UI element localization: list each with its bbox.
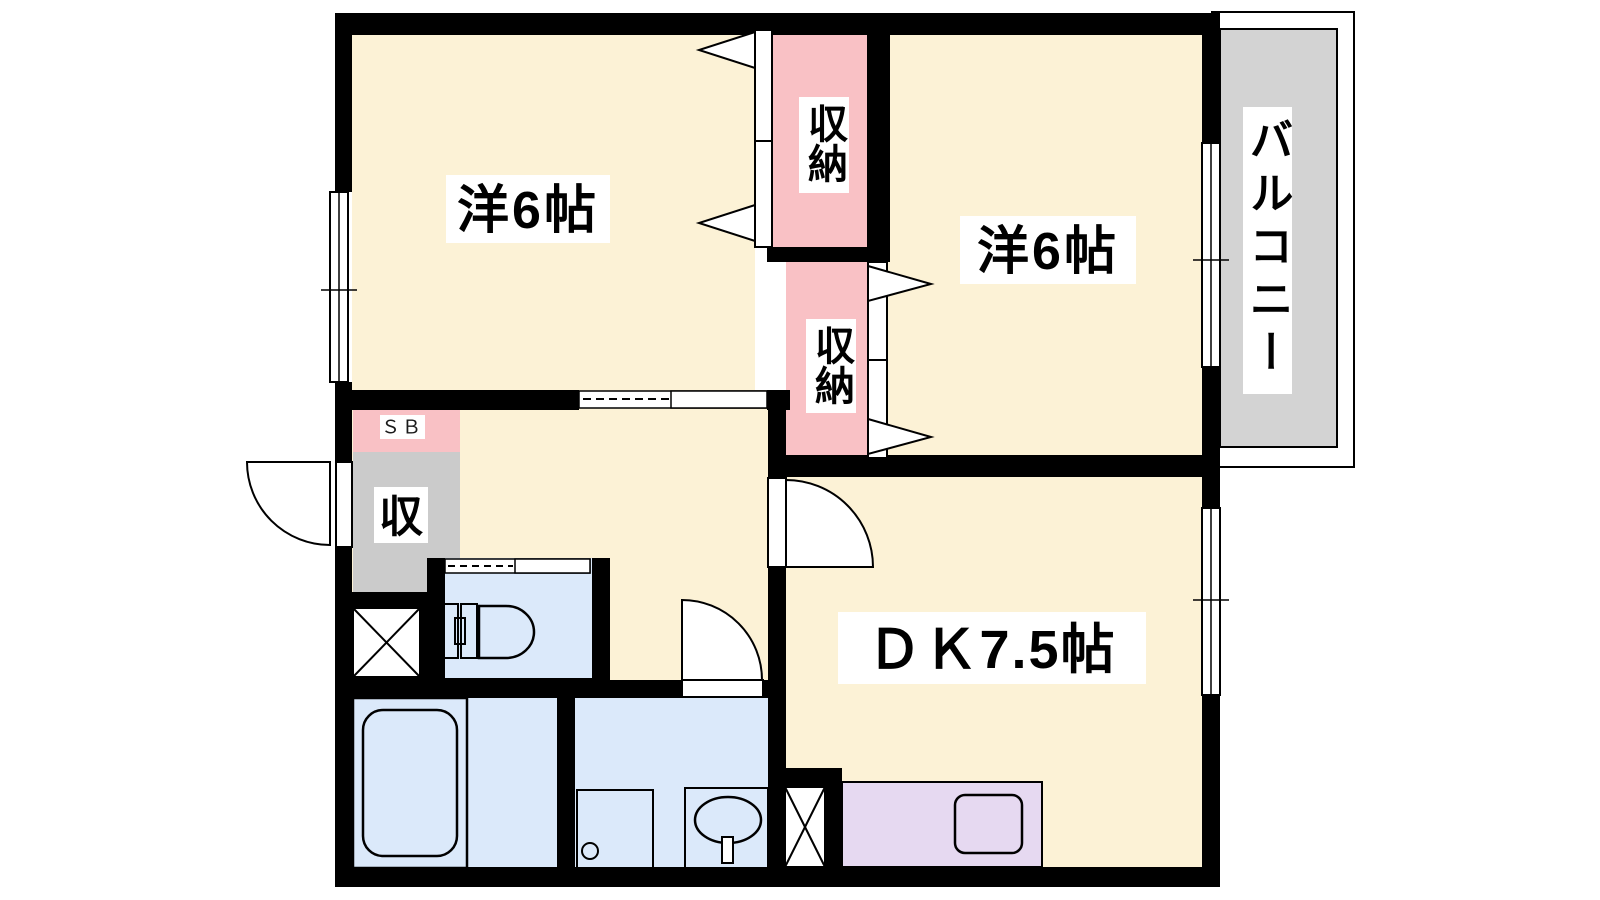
washroom-door-leaf (682, 680, 763, 697)
floor-plan-drawing: 洋6帖 洋6帖 ＤＫ7.5帖 収納 収納 収 ＳＢ バルコニー (0, 0, 1600, 900)
balcony-label: バルコニー (1243, 117, 1292, 382)
wall-segment (768, 455, 1220, 477)
wall-segment (867, 13, 890, 262)
room-western-2-label: 洋6帖 (977, 223, 1119, 281)
dk-door-leaf (768, 478, 786, 567)
wall-segment (1202, 367, 1220, 508)
hall-storage-label: 収 (379, 493, 423, 542)
wall-segment (420, 608, 445, 678)
bathroom-floor (352, 698, 557, 868)
kitchen-counter (842, 782, 1042, 867)
entry-door-leaf (336, 462, 352, 547)
wall-segment (557, 698, 575, 868)
entry-door (247, 462, 352, 547)
pipe-shaft-box (353, 608, 420, 677)
faucet (722, 837, 733, 863)
dining-kitchen-label: ＤＫ7.5帖 (867, 620, 1116, 680)
room-western-1-label: 洋6帖 (457, 182, 599, 240)
wall-segment (335, 13, 352, 192)
wall-segment (825, 768, 842, 868)
wall-segment (767, 247, 890, 262)
window-west-wall (321, 192, 357, 382)
pipe-shaft-box (785, 787, 825, 867)
wall-segment (592, 558, 610, 698)
sliding-door-toilet (445, 559, 590, 573)
wall-segment (352, 678, 610, 698)
closet-upper-label: 収納 (802, 103, 848, 183)
wall-segment (1202, 13, 1220, 143)
wall-segment (352, 390, 579, 410)
shoe-box-label: ＳＢ (381, 418, 423, 439)
wall-segment (1202, 695, 1220, 887)
closet-middle-label: 収納 (809, 325, 855, 405)
sliding-door-room1 (579, 391, 767, 408)
entry-door-swing (247, 462, 330, 545)
floor-plan-page: 洋6帖 洋6帖 ＤＫ7.5帖 収納 収納 収 ＳＢ バルコニー (0, 0, 1600, 900)
wall-segment (335, 382, 352, 463)
wall-segment (335, 13, 1220, 35)
wall-segment (335, 592, 427, 608)
